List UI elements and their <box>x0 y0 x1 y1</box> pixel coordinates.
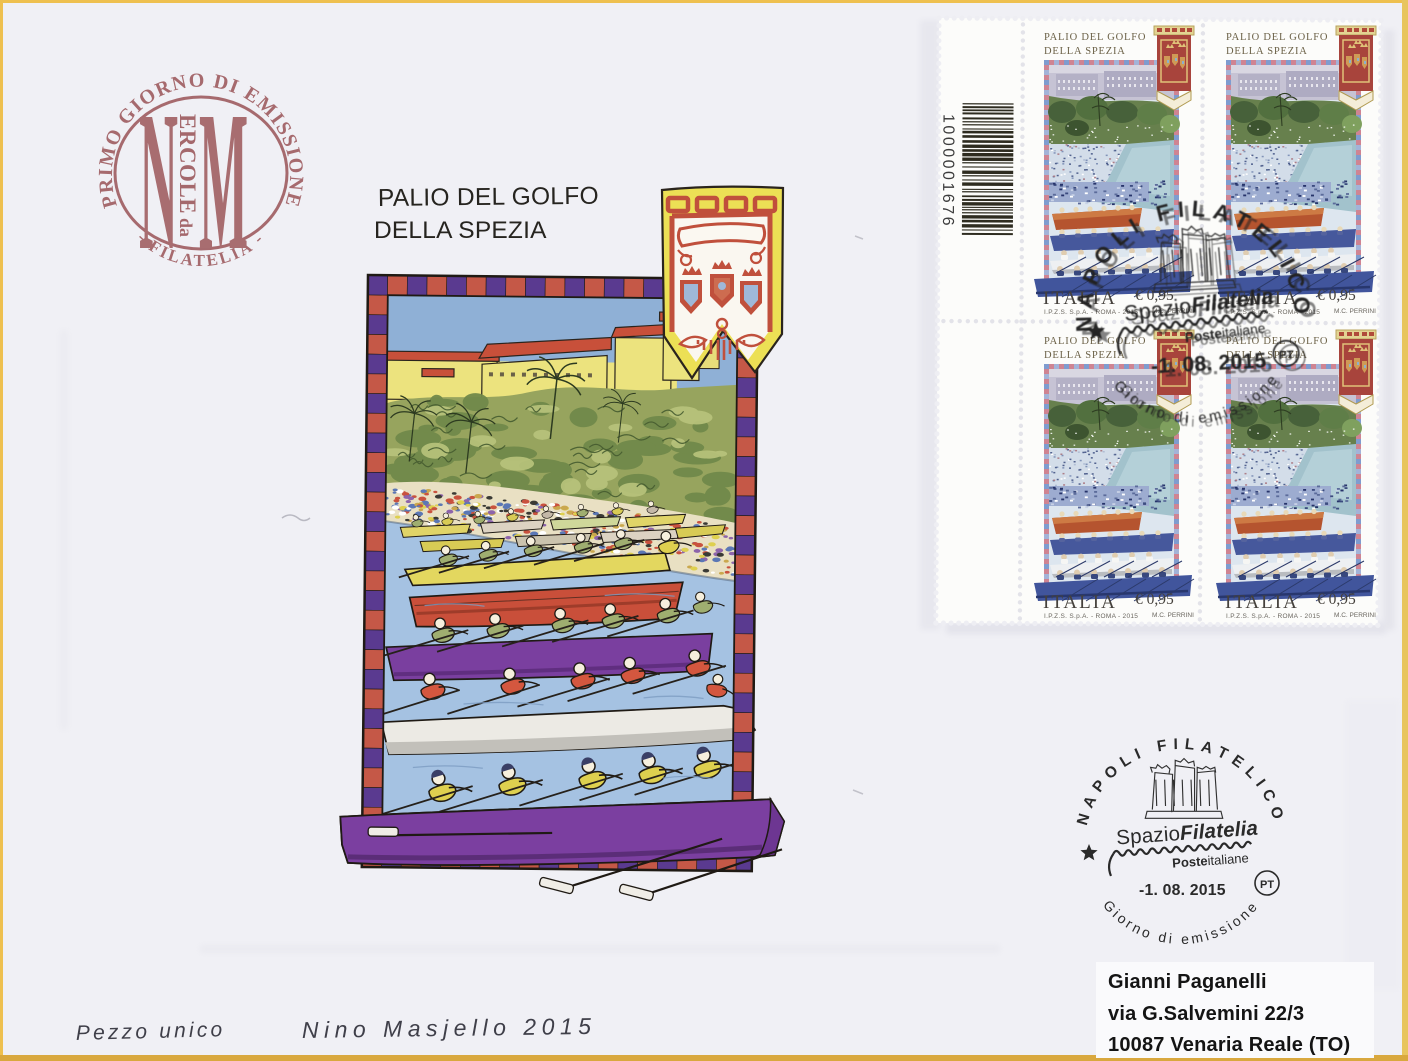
svg-text:PT: PT <box>1284 352 1300 366</box>
svg-text:€ 0,95: € 0,95 <box>1317 591 1356 608</box>
svg-text:€ 0,95: € 0,95 <box>1317 287 1356 304</box>
svg-text:PALIO DEL GOLFO: PALIO DEL GOLFO <box>1044 32 1146 43</box>
svg-text:DELLA SPEZIA: DELLA SPEZIA <box>1044 350 1126 361</box>
svg-text:da: da <box>176 218 196 237</box>
svg-text:M.C. PERRINI: M.C. PERRINI <box>1334 308 1376 315</box>
svg-text:PALIO DEL GOLFO: PALIO DEL GOLFO <box>378 183 599 212</box>
svg-text:PT: PT <box>1260 879 1274 891</box>
svg-text:Nino Masjello 2015: Nino Masjello 2015 <box>302 1013 597 1043</box>
svg-text:Gianni Paganelli: Gianni Paganelli <box>1108 971 1267 993</box>
svg-text:Pezzo unico: Pezzo unico <box>76 1018 226 1045</box>
svg-text:M: M <box>199 70 248 292</box>
svg-text:-1. 08. 2015: -1. 08. 2015 <box>1139 882 1226 899</box>
svg-text:M.C. PERRINI: M.C. PERRINI <box>1152 612 1194 619</box>
svg-text:PALIO DEL GOLFO: PALIO DEL GOLFO <box>1044 336 1146 347</box>
svg-text:PALIO DEL GOLFO: PALIO DEL GOLFO <box>1226 32 1328 43</box>
svg-text:I.P.Z.S. S.p.A. - ROMA - 2015: I.P.Z.S. S.p.A. - ROMA - 2015 <box>1226 613 1320 620</box>
svg-text:DELLA SPEZIA: DELLA SPEZIA <box>1044 46 1126 57</box>
svg-text:DELLA SPEZIA: DELLA SPEZIA <box>1226 46 1308 57</box>
svg-text:ITALIA: ITALIA <box>1225 592 1299 613</box>
svg-text:N: N <box>139 69 178 292</box>
svg-text:DELLA SPEZIA: DELLA SPEZIA <box>374 217 547 244</box>
svg-text:via G.Salvemini 22/3: via G.Salvemini 22/3 <box>1108 1003 1304 1025</box>
svg-text:ITALIA: ITALIA <box>1043 592 1117 613</box>
svg-text:I.P.Z.S. S.p.A. - ROMA - 2015: I.P.Z.S. S.p.A. - ROMA - 2015 <box>1044 613 1138 620</box>
svg-text:M.C. PERRINI: M.C. PERRINI <box>1334 612 1376 619</box>
svg-text:10087 Venaria Reale (TO): 10087 Venaria Reale (TO) <box>1108 1034 1350 1056</box>
svg-text:1000001676: 1000001676 <box>939 114 957 228</box>
svg-text:ERCOLE: ERCOLE <box>175 114 200 214</box>
svg-text:€ 0,95: € 0,95 <box>1135 591 1174 608</box>
